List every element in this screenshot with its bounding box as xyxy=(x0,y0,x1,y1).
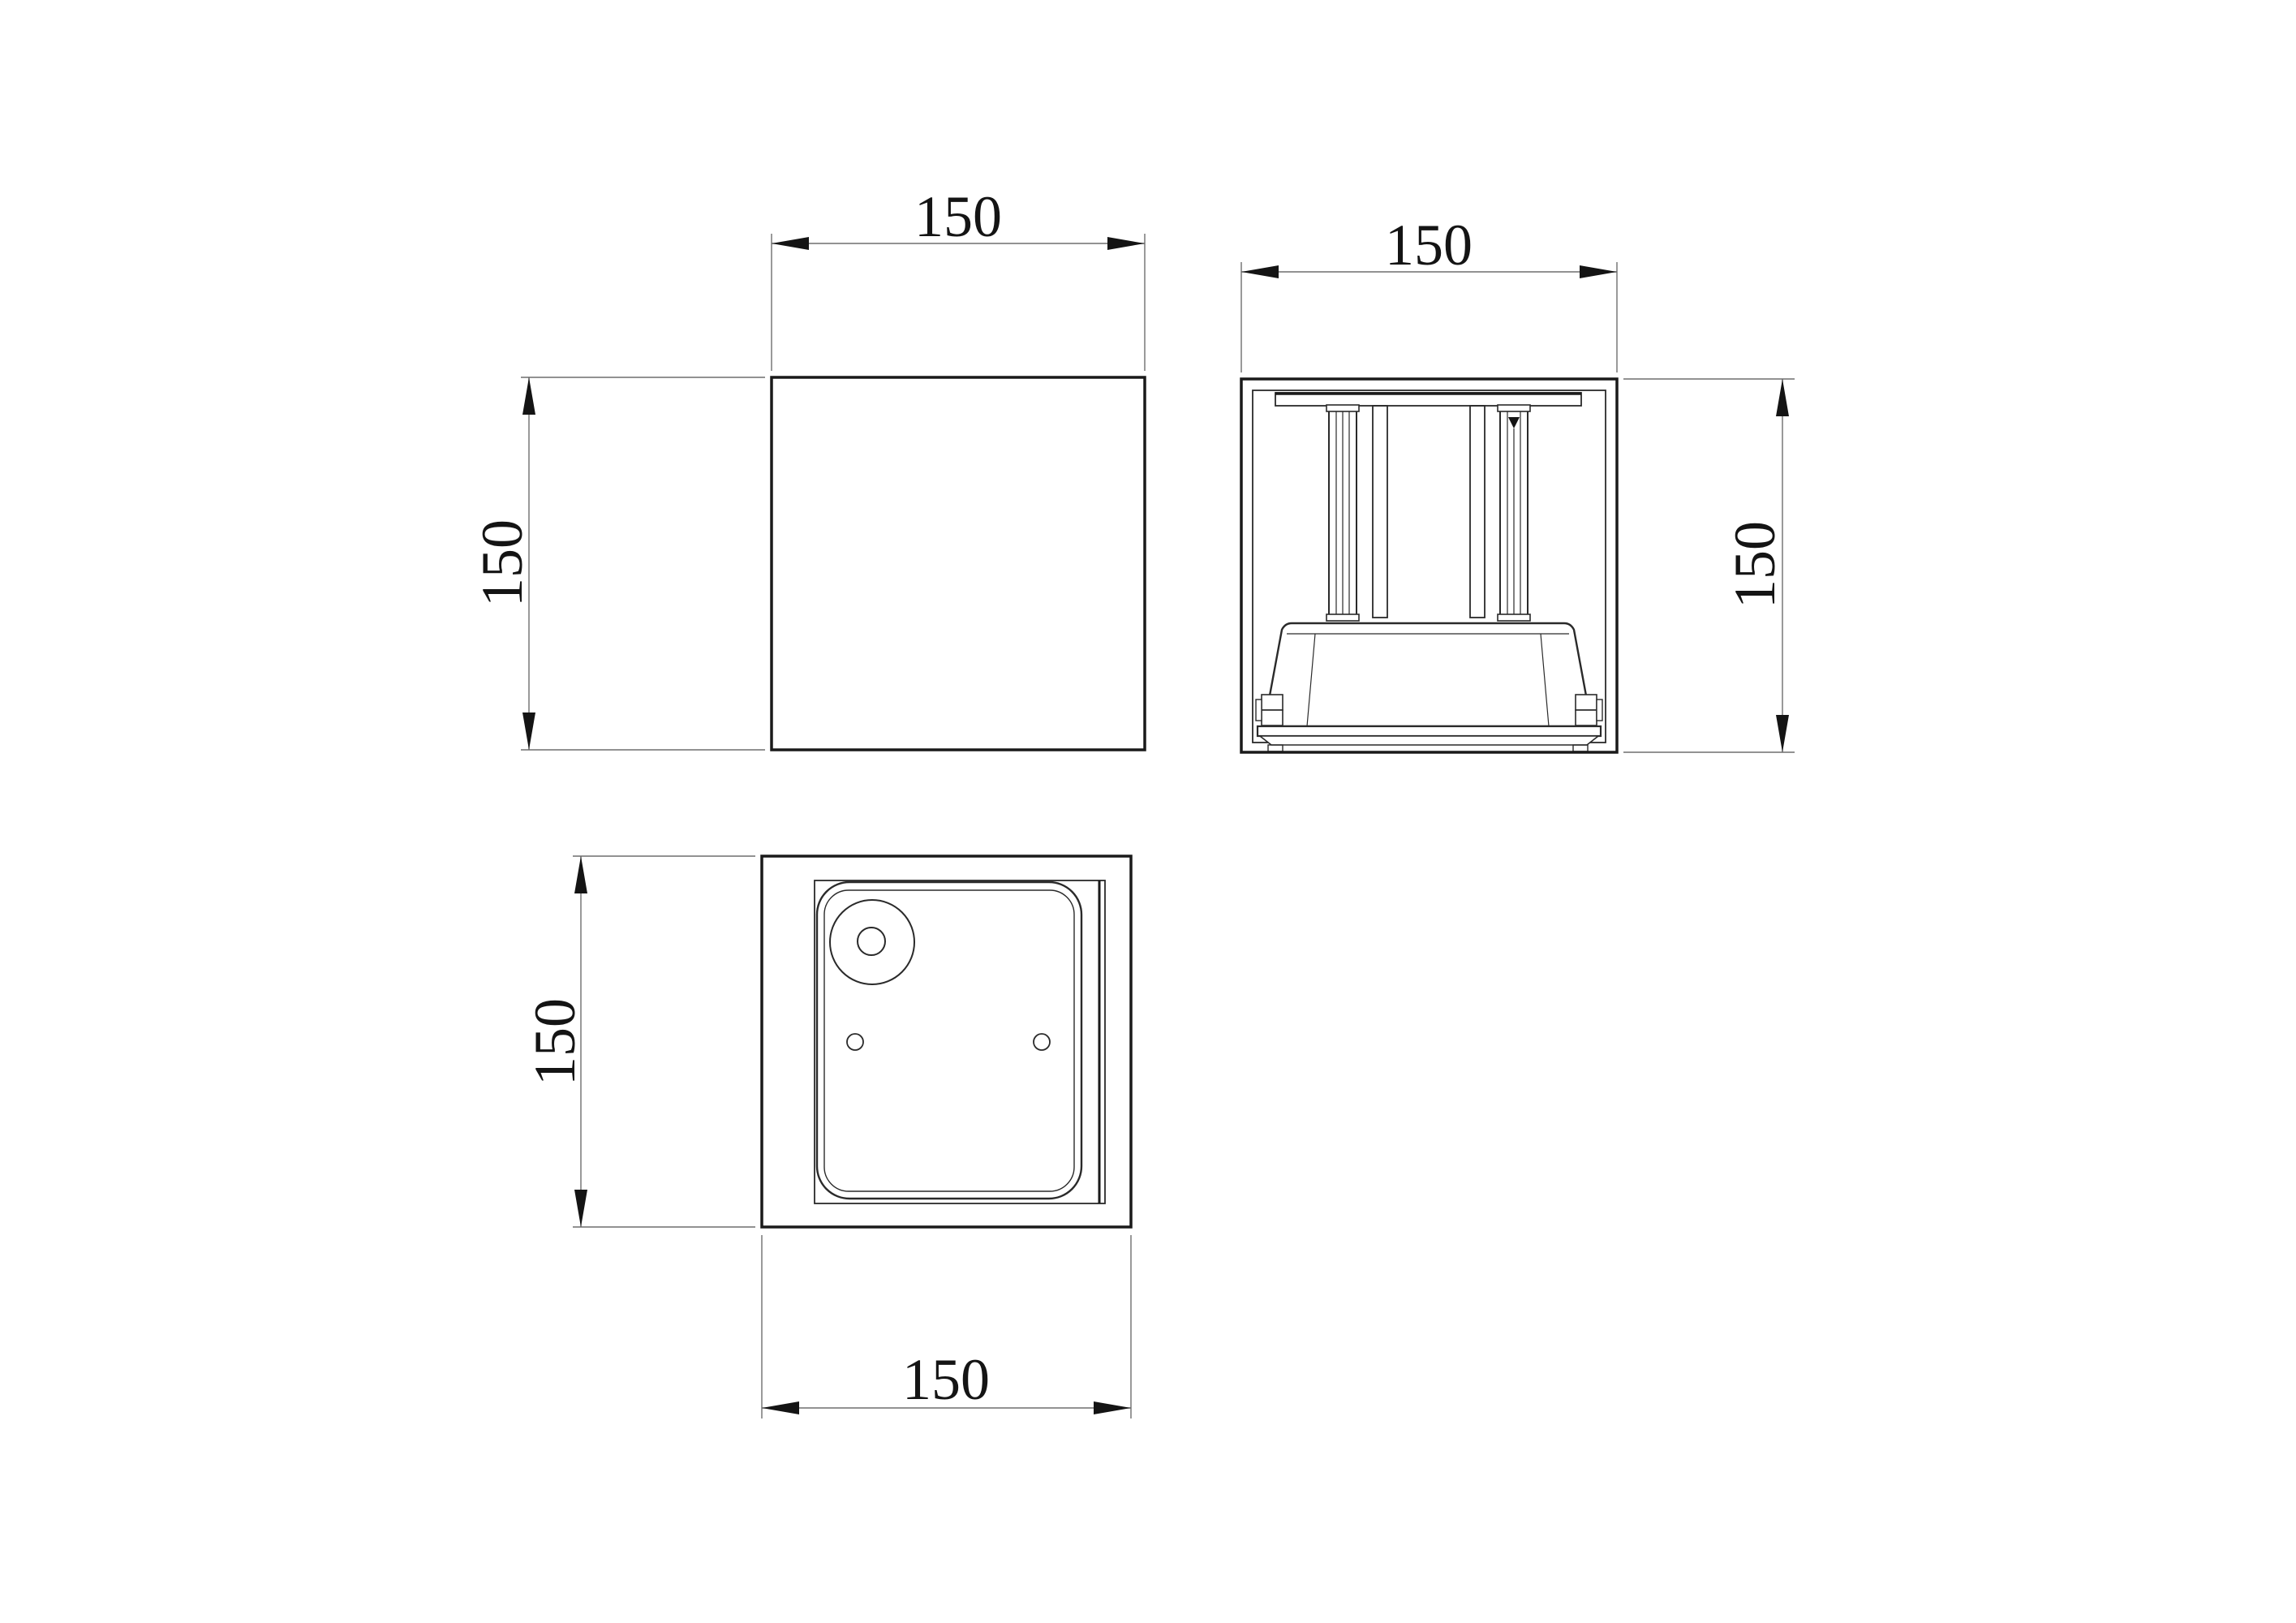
center-left-post xyxy=(1373,406,1387,618)
screw-tip-detail xyxy=(1508,417,1520,428)
side-width-extension-lines xyxy=(1241,262,1617,372)
front-height-dim-label: 150 xyxy=(470,519,535,607)
side-view: 150 150 xyxy=(1241,213,1795,752)
bottom-height-dimension: 150 xyxy=(522,856,755,1227)
cover-panel-outer xyxy=(817,882,1081,1199)
front-width-dim-label: 150 xyxy=(914,184,1002,249)
left-post-bottom-cap xyxy=(1326,614,1359,621)
left-clip-lower xyxy=(1262,710,1283,725)
right-post-bottom-cap xyxy=(1498,614,1530,621)
side-width-dimension: 150 xyxy=(1241,213,1617,372)
right-post-flutes xyxy=(1507,411,1520,614)
center-right-post xyxy=(1470,406,1485,618)
right-clip-upper xyxy=(1576,695,1597,710)
three-view-drawing: 150 150 xyxy=(0,0,2296,1623)
heatsink-outline xyxy=(1264,623,1592,726)
bottom-width-dim-label: 150 xyxy=(902,1347,990,1412)
front-height-extension-lines xyxy=(521,377,765,750)
front-height-dimension: 150 xyxy=(470,377,765,750)
left-clip-upper xyxy=(1262,695,1283,710)
side-height-dimension: 150 xyxy=(1623,379,1795,752)
base-plate xyxy=(1258,726,1601,751)
left-post-top-cap xyxy=(1326,405,1359,411)
left-support-post xyxy=(1326,405,1359,621)
side-height-dim-label: 150 xyxy=(1722,521,1787,609)
right-clip-lower xyxy=(1576,710,1597,725)
right-support-post xyxy=(1498,405,1530,621)
drawing-sheet: 150 150 xyxy=(0,0,2296,1623)
left-clip-tab xyxy=(1256,700,1262,721)
right-post-top-cap xyxy=(1498,405,1530,411)
heatsink-body xyxy=(1264,623,1592,726)
bottom-width-dimension: 150 xyxy=(762,1235,1131,1419)
base-foot-right xyxy=(1573,745,1588,751)
bottom-height-extension-lines xyxy=(573,856,755,1227)
base-bevel xyxy=(1260,736,1598,745)
front-width-extension-lines xyxy=(772,234,1145,371)
side-width-dim-label: 150 xyxy=(1385,213,1473,278)
right-clip-tab xyxy=(1597,700,1602,721)
bottom-view: 150 150 xyxy=(522,856,1131,1419)
front-view: 150 150 xyxy=(470,184,1145,750)
base-strip xyxy=(1258,726,1601,736)
bottom-height-dim-label: 150 xyxy=(522,998,587,1086)
front-width-dimension: 150 xyxy=(772,184,1145,371)
front-view-outline xyxy=(772,377,1145,750)
base-foot-left xyxy=(1268,745,1283,751)
left-post-flutes xyxy=(1336,411,1349,614)
